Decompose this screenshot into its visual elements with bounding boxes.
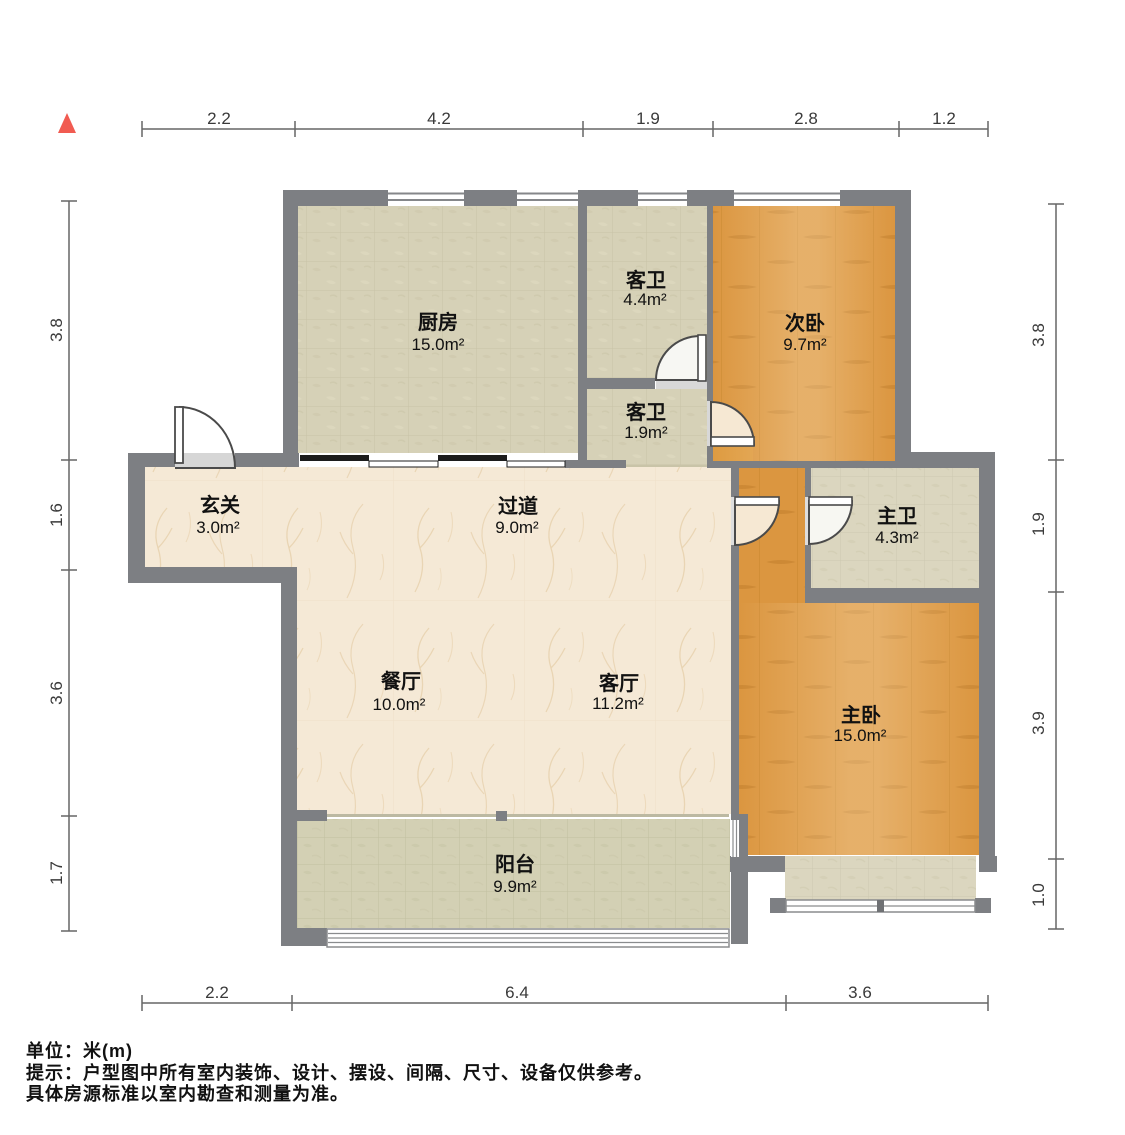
svg-text:3.0m²: 3.0m² xyxy=(196,518,240,537)
svg-text:1.9: 1.9 xyxy=(636,109,660,128)
svg-text:3.6: 3.6 xyxy=(47,681,66,705)
svg-text:1.9m²: 1.9m² xyxy=(624,423,668,442)
svg-text:4.2: 4.2 xyxy=(427,109,451,128)
svg-text:9.9m²: 9.9m² xyxy=(493,877,537,896)
svg-text:9.7m²: 9.7m² xyxy=(783,335,827,354)
svg-text:客卫: 客卫 xyxy=(625,268,666,292)
svg-text:次卧: 次卧 xyxy=(785,311,825,335)
svg-text:2.8: 2.8 xyxy=(794,109,818,128)
svg-text:2.2: 2.2 xyxy=(207,109,231,128)
svg-text:提示：户型图中所有室内装饰、设计、摆设、间隔、尺寸、设备仅供: 提示：户型图中所有室内装饰、设计、摆设、间隔、尺寸、设备仅供参考。 xyxy=(26,1062,653,1083)
svg-text:4.3m²: 4.3m² xyxy=(875,528,919,547)
svg-text:3.9: 3.9 xyxy=(1029,711,1048,735)
svg-text:过道: 过道 xyxy=(498,494,538,518)
svg-text:具体房源标准以室内勘查和测量为准。: 具体房源标准以室内勘查和测量为准。 xyxy=(26,1083,349,1104)
svg-text:阳台: 阳台 xyxy=(495,852,535,876)
svg-text:客厅: 客厅 xyxy=(598,671,639,695)
svg-text:厨房: 厨房 xyxy=(418,310,458,334)
svg-text:4.4m²: 4.4m² xyxy=(623,290,667,309)
svg-text:主卧: 主卧 xyxy=(841,703,881,727)
svg-text:主卫: 主卫 xyxy=(877,504,917,528)
svg-text:客卫: 客卫 xyxy=(625,400,666,424)
svg-text:3.8: 3.8 xyxy=(47,318,66,342)
svg-text:15.0m²: 15.0m² xyxy=(834,726,887,745)
svg-text:3.8: 3.8 xyxy=(1029,323,1048,347)
svg-text:9.0m²: 9.0m² xyxy=(495,518,539,537)
svg-text:3.6: 3.6 xyxy=(848,983,872,1002)
svg-text:6.4: 6.4 xyxy=(505,983,529,1002)
svg-text:玄关: 玄关 xyxy=(200,493,240,517)
svg-text:1.2: 1.2 xyxy=(932,109,956,128)
svg-text:1.0: 1.0 xyxy=(1029,883,1048,907)
svg-text:1.7: 1.7 xyxy=(47,861,66,885)
svg-text:2.2: 2.2 xyxy=(205,983,229,1002)
svg-text:15.0m²: 15.0m² xyxy=(412,335,465,354)
svg-text:单位：米(m): 单位：米(m) xyxy=(26,1040,133,1061)
svg-text:1.9: 1.9 xyxy=(1029,512,1048,536)
svg-text:11.2m²: 11.2m² xyxy=(592,694,644,713)
svg-text:1.6: 1.6 xyxy=(47,503,66,527)
svg-text:10.0m²: 10.0m² xyxy=(373,695,426,714)
svg-text:餐厅: 餐厅 xyxy=(381,669,421,693)
